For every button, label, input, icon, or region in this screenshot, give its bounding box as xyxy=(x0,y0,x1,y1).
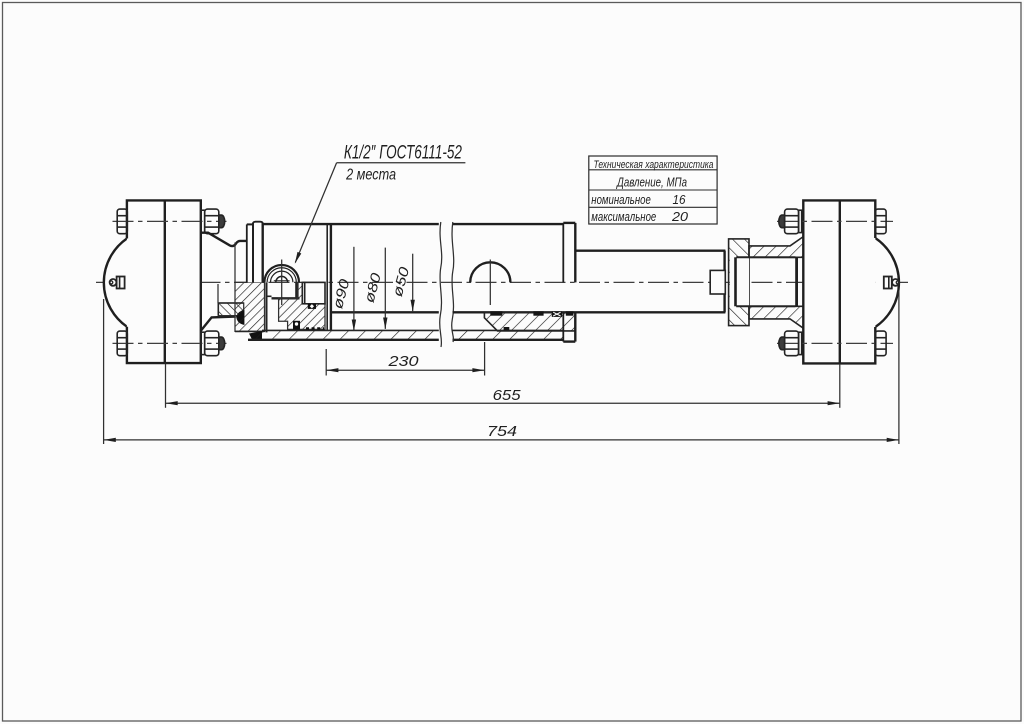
svg-text:Давление, МПа: Давление, МПа xyxy=(616,174,687,189)
svg-text:754: 754 xyxy=(487,424,517,440)
svg-text:номинальное: номинальное xyxy=(591,193,651,207)
svg-text:2 места: 2 места xyxy=(345,167,396,184)
svg-text:К1/2″ ГОСТ6111-52: К1/2″ ГОСТ6111-52 xyxy=(344,143,462,164)
svg-text:максимальное: максимальное xyxy=(591,210,656,224)
svg-text:655: 655 xyxy=(493,388,522,404)
svg-text:230: 230 xyxy=(387,354,418,370)
svg-text:16: 16 xyxy=(673,193,686,207)
svg-text:20: 20 xyxy=(671,210,688,224)
svg-text:Техническая характеристика: Техническая характеристика xyxy=(594,159,714,171)
